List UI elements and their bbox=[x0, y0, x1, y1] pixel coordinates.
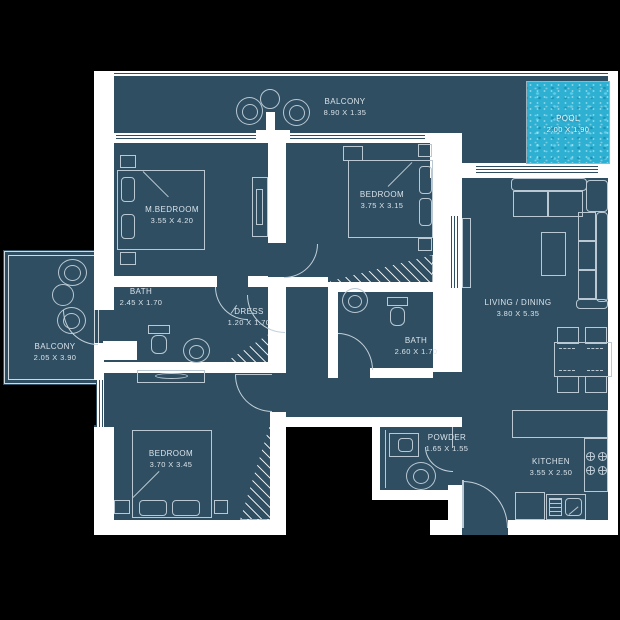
wall-bottom-right-b bbox=[508, 520, 618, 535]
sofa-cushion-5 bbox=[578, 270, 596, 299]
bath1-toilet-bowl bbox=[151, 335, 167, 354]
wall-bottom-left bbox=[94, 520, 286, 535]
wall-bath2-bottom bbox=[370, 368, 433, 378]
door-leaf-entrance bbox=[462, 480, 464, 528]
room-label-bedroom2: BEDROOM 3.75 X 3.15 bbox=[360, 189, 404, 211]
wall-bath1-top-b bbox=[248, 276, 268, 287]
window-bedroom3-left bbox=[96, 380, 104, 427]
wall-powder-bottom bbox=[372, 490, 458, 500]
kitchen-counter-right bbox=[584, 438, 608, 492]
bed2-pillow-1 bbox=[419, 166, 432, 194]
balcony-top-chair-1-seat bbox=[242, 104, 258, 120]
mbed-pillow-1 bbox=[121, 177, 135, 202]
window-living-top bbox=[476, 166, 598, 173]
powder-toilet-bowl bbox=[398, 438, 413, 452]
wall-left-upper bbox=[94, 71, 114, 310]
room-label-bath2: BATH 2.60 X 1.70 bbox=[395, 335, 438, 357]
bath2-toilet-tank bbox=[387, 297, 408, 306]
balcony-left-dims: 2.05 X 3.90 bbox=[34, 352, 77, 363]
void-bottom-middle bbox=[286, 427, 372, 535]
bath1-toilet-tank bbox=[148, 325, 170, 334]
bedroom3-dims: 3.70 X 3.45 bbox=[149, 459, 193, 470]
room-label-bedroom3: BEDROOM 3.70 X 3.45 bbox=[149, 448, 193, 470]
room-label-pool: POOL 2.00 X 1.90 bbox=[547, 113, 590, 135]
kitchen-drainboard bbox=[549, 498, 562, 516]
dress-name: DRESS bbox=[228, 306, 271, 317]
door-leaf-bedroom3 bbox=[235, 374, 272, 375]
room-label-balcony-top: BALCONY 8.90 X 1.35 bbox=[324, 96, 367, 118]
room-label-dress: DRESS 1.20 X 1.70 bbox=[228, 306, 271, 328]
bath1-sink-inner bbox=[189, 345, 204, 359]
bath2-dims: 2.60 X 1.70 bbox=[395, 346, 438, 357]
bed2-stool bbox=[343, 146, 363, 161]
sofa-armrest bbox=[576, 299, 608, 309]
bedroom2-name: BEDROOM bbox=[360, 189, 404, 200]
dining-chair-4 bbox=[585, 376, 607, 393]
void-below-powder bbox=[372, 500, 430, 535]
balcony-top-table bbox=[260, 89, 280, 109]
sofa-corner bbox=[586, 180, 608, 212]
bath1-dims: 2.45 X 1.70 bbox=[120, 297, 163, 308]
bed2-pillow-2 bbox=[419, 198, 432, 226]
wall-bath2-left bbox=[328, 285, 338, 378]
powder-counter-line-v bbox=[385, 430, 386, 488]
bed2-nightstand-bottom bbox=[418, 238, 432, 251]
sofa-back-top bbox=[511, 178, 587, 191]
window-balcony-1 bbox=[116, 135, 256, 141]
room-label-kitchen: KITCHEN 3.55 X 2.50 bbox=[530, 456, 573, 478]
sofa-back-right bbox=[596, 212, 608, 302]
stove-burner-4 bbox=[598, 466, 607, 475]
bath2-toilet-bowl bbox=[390, 307, 405, 326]
mbed-nightstand-bottom bbox=[120, 252, 136, 265]
wall-top-rail bbox=[96, 71, 612, 76]
bedroom3-name: BEDROOM bbox=[149, 448, 193, 459]
window-balcony-2 bbox=[290, 135, 425, 141]
coffee-table bbox=[541, 232, 566, 276]
wall-under-bed2 bbox=[286, 277, 328, 287]
balcony-top-chair-2-seat bbox=[289, 105, 305, 121]
bed3-nightstand-left bbox=[114, 500, 130, 514]
sofa-cushion-4 bbox=[578, 241, 596, 270]
mbed-pillow-2 bbox=[121, 214, 135, 239]
wall-bottom-right-a bbox=[430, 520, 462, 535]
balcony-top-dims: 8.90 X 1.35 bbox=[324, 107, 367, 118]
balcony-left-name: BALCONY bbox=[34, 341, 77, 352]
sofa-cushion-1 bbox=[513, 191, 548, 217]
dress-dims: 1.20 X 1.70 bbox=[228, 317, 271, 328]
bath2-name: BATH bbox=[395, 335, 438, 346]
mbed-nightstand-top bbox=[120, 155, 136, 168]
room-label-powder: POWDER 1.65 X 1.55 bbox=[426, 432, 469, 454]
floor-plan: POOL 2.00 X 1.90 bbox=[0, 0, 620, 620]
mbed-wardrobe-inner bbox=[256, 189, 263, 225]
mbedroom-dims: 3.55 X 4.20 bbox=[145, 215, 199, 226]
wall-bath1-block bbox=[103, 341, 137, 360]
pool-name: POOL bbox=[547, 113, 590, 124]
bath2-sink-inner bbox=[348, 295, 362, 308]
bed3-pillow-1 bbox=[139, 500, 167, 516]
window-living-left bbox=[451, 216, 459, 288]
pool: POOL 2.00 X 1.90 bbox=[526, 81, 610, 164]
bath1-name: BATH bbox=[120, 286, 163, 297]
dining-table-mark-1 bbox=[559, 348, 575, 349]
balcony-left-chair-1-seat bbox=[64, 265, 81, 281]
bed3-pillow-2 bbox=[172, 500, 200, 516]
dining-table-mark-4 bbox=[587, 370, 603, 371]
wall-powder-left bbox=[372, 425, 380, 500]
room-label-balcony-left: BALCONY 2.05 X 3.90 bbox=[34, 341, 77, 363]
stove-burner-1 bbox=[586, 452, 595, 461]
living-dining-name: LIVING / DINING bbox=[485, 297, 552, 308]
wall-left-lower bbox=[94, 427, 114, 535]
dining-chair-3 bbox=[557, 376, 579, 393]
pool-dims: 2.00 X 1.90 bbox=[547, 124, 590, 135]
tv-unit bbox=[462, 218, 471, 288]
wall-balcony-divider-stub bbox=[266, 112, 275, 133]
balcony-top-name: BALCONY bbox=[324, 96, 367, 107]
dining-table-mark-3 bbox=[559, 370, 575, 371]
bed3-nightstand-right bbox=[214, 500, 228, 514]
powder-dims: 1.65 X 1.55 bbox=[426, 443, 469, 454]
wall-mbed-bed2-divider bbox=[268, 143, 286, 243]
balcony-left-table bbox=[52, 284, 74, 306]
room-label-bath1: BATH 2.45 X 1.70 bbox=[120, 286, 163, 308]
bed2-nightstand-top bbox=[418, 144, 432, 157]
powder-name: POWDER bbox=[426, 432, 469, 443]
wall-mbed-stub bbox=[268, 277, 286, 290]
mbedroom-name: M.BEDROOM bbox=[145, 204, 199, 215]
powder-sink-inner bbox=[413, 469, 429, 484]
room-label-living-dining: LIVING / DINING 3.80 X 5.35 bbox=[485, 297, 552, 319]
sofa-cushion-3 bbox=[578, 212, 596, 241]
bedroom2-dims: 3.75 X 3.15 bbox=[360, 200, 404, 211]
dining-table-mark-2 bbox=[587, 348, 603, 349]
living-dining-dims: 3.80 X 5.35 bbox=[485, 308, 552, 319]
kitchen-name: KITCHEN bbox=[530, 456, 573, 467]
stove-burner-3 bbox=[586, 466, 595, 475]
kitchen-cabinet bbox=[515, 492, 545, 520]
stove-burner-2 bbox=[598, 452, 607, 461]
kitchen-dims: 3.55 X 2.50 bbox=[530, 467, 573, 478]
kitchen-counter-top bbox=[512, 410, 608, 438]
bed3-dresser-bowl bbox=[155, 373, 188, 379]
room-label-mbedroom: M.BEDROOM 3.55 X 4.20 bbox=[145, 204, 199, 226]
